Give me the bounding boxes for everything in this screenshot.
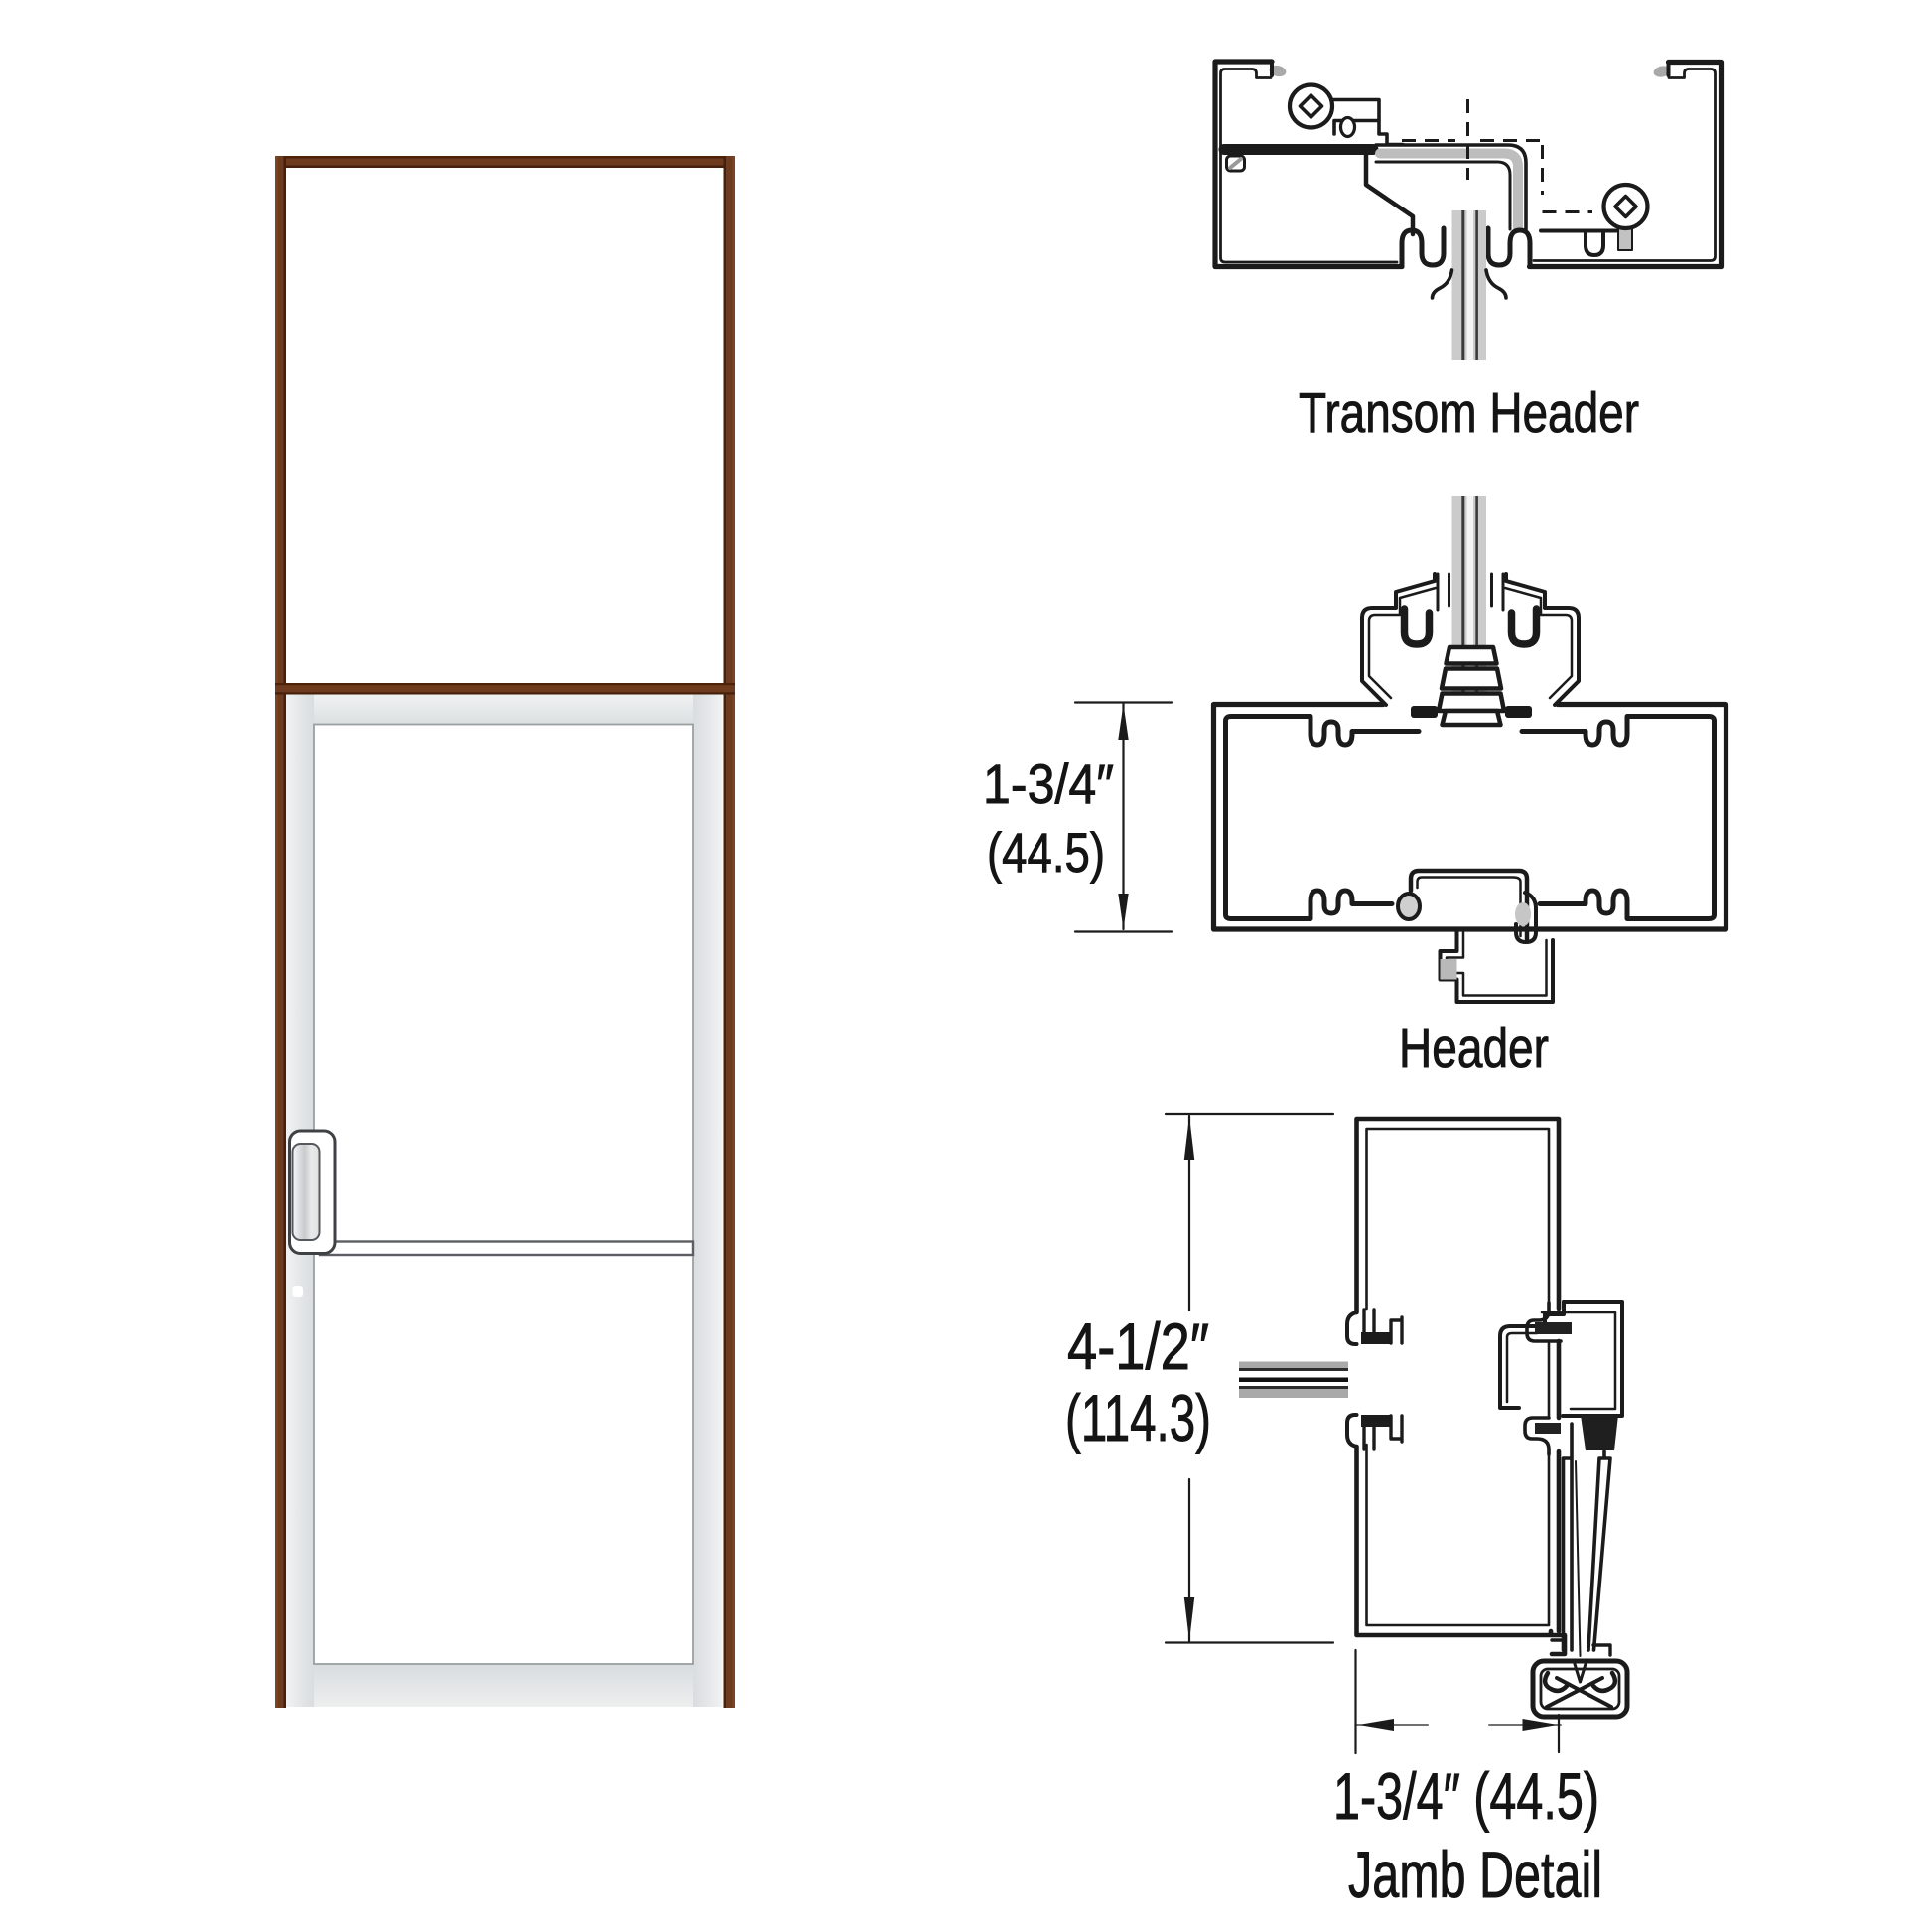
svg-text:Jamb Detail: Jamb Detail	[1348, 1838, 1602, 1911]
svg-text:1-3/4″ (44.5): 1-3/4″ (44.5)	[1333, 1759, 1599, 1833]
svg-text:4-1/2″: 4-1/2″	[1067, 1310, 1209, 1383]
svg-text:Header: Header	[1399, 1017, 1549, 1080]
svg-text:(44.5): (44.5)	[987, 821, 1105, 884]
svg-text:1-3/4″: 1-3/4″	[983, 753, 1114, 815]
svg-text:(114.3): (114.3)	[1065, 1381, 1211, 1454]
svg-text:Transom Header: Transom Header	[1299, 381, 1639, 445]
